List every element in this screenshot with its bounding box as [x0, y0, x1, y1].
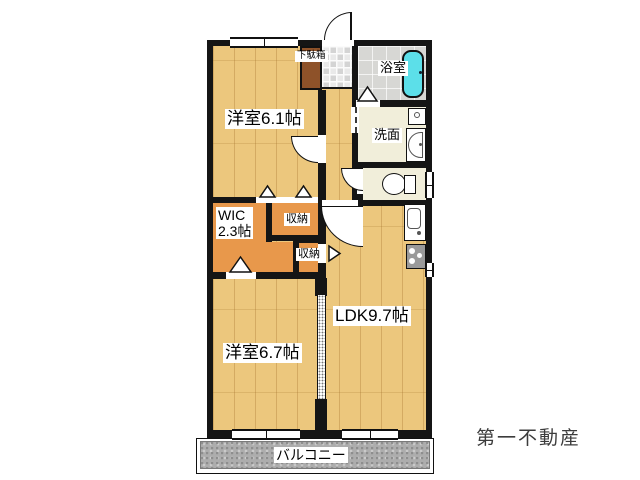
kitchen-sink-unit — [404, 204, 426, 241]
storage2-label: 収納 — [296, 248, 322, 261]
wic-floor-extension — [266, 242, 293, 272]
sliding-door — [317, 295, 326, 400]
storage2-folding-door-icon — [327, 244, 342, 263]
washbasin — [406, 128, 426, 162]
company-name: 第一不動産 — [476, 423, 581, 450]
window-ldk-over — [342, 429, 398, 440]
window-bedroom1 — [230, 37, 298, 48]
wic-label-line1: WIC — [218, 207, 251, 223]
wic-label: WIC 2.3帖 — [216, 207, 253, 239]
toilet-tank — [404, 175, 416, 194]
bath-label: 浴室 — [378, 61, 408, 76]
washing-machine — [408, 108, 426, 125]
wall-divider-upper — [315, 278, 327, 296]
storage1-label: 収納 — [284, 213, 310, 226]
toilet-icon — [382, 173, 406, 195]
washroom-opening — [351, 107, 359, 133]
entrance-opening — [322, 40, 354, 46]
storage1-folding-door-icon — [258, 184, 277, 199]
window-bedroom2-over — [232, 429, 300, 440]
bathtub-drain — [419, 71, 422, 74]
entrance-door-arc — [324, 12, 352, 40]
storage1-folding-door-icon-2 — [294, 184, 313, 199]
window-kitchen — [425, 263, 434, 277]
stove — [406, 244, 426, 269]
floor-plan: 洋室6.1帖 下駄箱 浴室 洗面 WIC 2.3帖 収納 収納 洋室6.7帖 L… — [0, 0, 640, 480]
window-toilet — [425, 172, 434, 198]
bedroom1-label: 洋室6.1帖 — [225, 109, 304, 129]
bedroom2-label: 洋室6.7帖 — [223, 343, 302, 363]
shoe-cabinet-label: 下駄箱 — [295, 51, 328, 62]
entrance-threshold — [322, 87, 352, 89]
bath-folding-door-icon — [356, 85, 379, 103]
bedroom1-door-opening — [318, 135, 326, 163]
washroom-label: 洗面 — [372, 128, 402, 143]
balcony-label: バルコニー — [274, 447, 348, 463]
wall-left — [207, 40, 213, 438]
ldk-label: LDK9.7帖 — [333, 306, 411, 326]
wall-right — [426, 40, 432, 438]
wall-divider-lower — [315, 399, 327, 430]
wic-folding-door-icon — [228, 255, 253, 274]
wic-label-line2: 2.3帖 — [218, 223, 251, 239]
wall-washroom-bottom — [352, 162, 426, 168]
